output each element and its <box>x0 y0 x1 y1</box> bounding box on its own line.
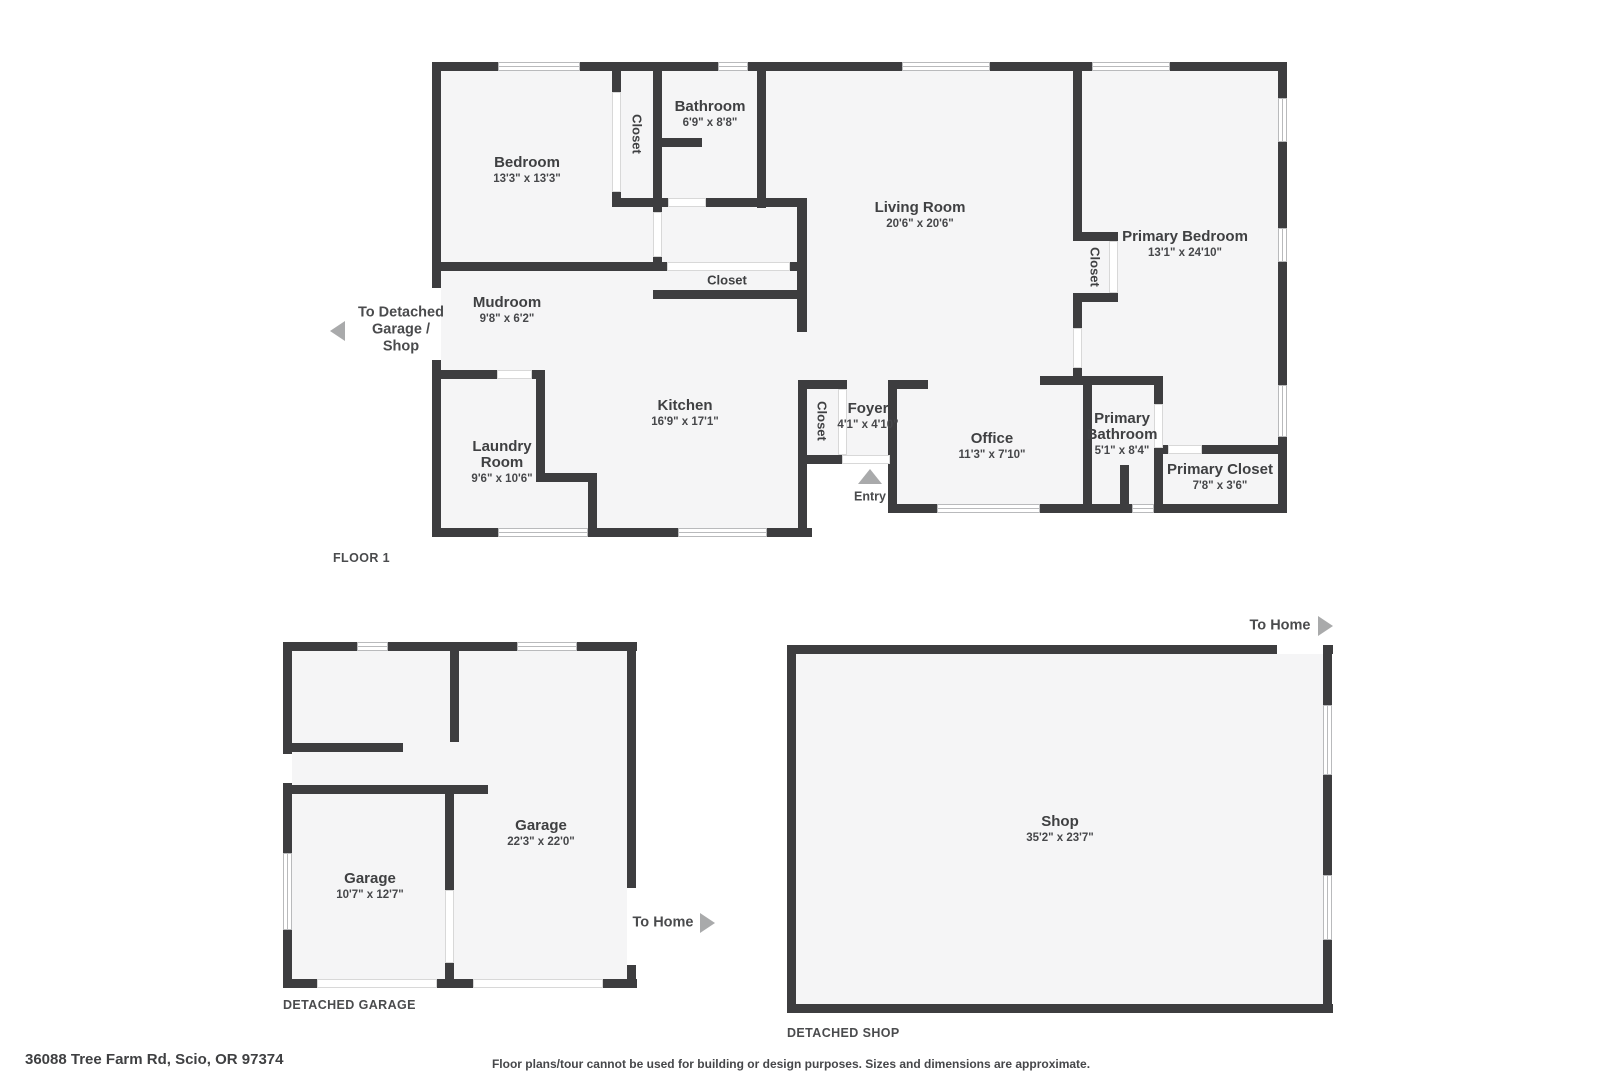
room-name: Foyer <box>837 401 898 417</box>
door-opening <box>1109 241 1118 293</box>
room-label-garage-main: Garage 22'3" x 22'0" <box>507 818 575 848</box>
closet-label-hall: Closet <box>707 273 747 288</box>
door-opening <box>283 754 292 783</box>
wall <box>1120 465 1129 513</box>
door-opening <box>612 92 621 192</box>
wall <box>1323 645 1332 1013</box>
wall <box>450 642 459 742</box>
room-label-garage-small: Garage 10'7" x 12'7" <box>336 871 404 901</box>
room-name: Primary Bathroom <box>1082 411 1162 443</box>
wall <box>536 370 545 482</box>
window <box>1132 504 1154 513</box>
room-label-office: Office 11'3" x 7'10" <box>959 431 1026 461</box>
window <box>1278 228 1287 262</box>
detached-shop-title: DETACHED SHOP <box>787 1026 900 1040</box>
wall <box>653 138 702 147</box>
window <box>517 642 577 651</box>
window <box>678 528 767 537</box>
room-name: Bedroom <box>493 155 561 171</box>
wall <box>612 198 807 207</box>
wall <box>1073 368 1082 385</box>
room-name: Primary Bedroom <box>1122 229 1248 245</box>
wall <box>1073 293 1118 302</box>
window <box>1278 385 1287 437</box>
wall <box>797 198 807 332</box>
window <box>902 62 990 71</box>
closet-label-foyer: Closet <box>815 401 830 441</box>
room-name: Office <box>959 431 1026 447</box>
arrow-right-icon <box>700 913 715 933</box>
room-name: Shop <box>1026 814 1094 830</box>
arrow-right-icon <box>1318 616 1333 636</box>
window <box>1092 62 1170 71</box>
room-label-primary-closet: Primary Closet 7'8" x 3'6" <box>1167 462 1273 492</box>
window <box>498 528 588 537</box>
wall <box>757 71 766 208</box>
wall <box>283 642 637 651</box>
door-opening <box>1277 645 1323 654</box>
room-label-primary-bathroom: Primary Bathroom 5'1" x 8'4" <box>1082 411 1162 457</box>
door-opening <box>668 198 706 207</box>
room-dims: 13'3" x 13'3" <box>493 173 561 185</box>
door-opening <box>497 370 532 379</box>
room-label-bedroom: Bedroom 13'3" x 13'3" <box>493 155 561 185</box>
room-label-shop: Shop 35'2" x 23'7" <box>1026 814 1094 844</box>
door-opening <box>473 979 603 988</box>
wall <box>1073 302 1082 328</box>
room-dims: 9'6" x 10'6" <box>471 473 533 485</box>
entry-marker-icon <box>858 469 882 484</box>
wall <box>888 380 928 389</box>
room-dims: 13'1" x 24'10" <box>1122 247 1248 259</box>
door-opening <box>317 979 437 988</box>
room-name: Garage <box>507 818 575 834</box>
closet-label-bedroom: Closet <box>630 114 645 154</box>
room-name: Kitchen <box>651 398 719 414</box>
to-home-label-shop: To Home <box>1250 617 1311 634</box>
room-dims: 20'6" x 20'6" <box>875 218 966 230</box>
wall <box>283 785 488 794</box>
room-label-laundry-room: Laundry Room 9'6" x 10'6" <box>471 439 533 485</box>
door-opening <box>842 455 890 464</box>
room-dims: 5'1" x 8'4" <box>1082 445 1162 457</box>
window <box>1323 875 1332 940</box>
closet-label-primary-bedroom: Closet <box>1088 247 1103 287</box>
room-name: Primary Closet <box>1167 462 1273 478</box>
floor-plan-page: Bedroom 13'3" x 13'3" Bathroom 6'9" x 8'… <box>0 0 1620 1080</box>
room-dims: 16'9" x 17'1" <box>651 416 719 428</box>
detached-garage-title: DETACHED GARAGE <box>283 998 416 1012</box>
room-label-living-room: Living Room 20'6" x 20'6" <box>875 200 966 230</box>
arrow-left-icon <box>330 321 345 341</box>
to-home-label-garage: To Home <box>633 914 694 931</box>
wall <box>787 645 1333 654</box>
door-opening <box>667 262 790 271</box>
wall <box>1073 232 1118 241</box>
wall <box>653 290 797 299</box>
room-name: Garage <box>336 871 404 887</box>
wall <box>588 473 597 537</box>
wall <box>798 380 847 389</box>
window <box>937 504 1040 513</box>
room-dims: 10'7" x 12'7" <box>336 889 404 901</box>
window <box>718 62 748 71</box>
room-name: Bathroom <box>675 99 746 115</box>
room-dims: 11'3" x 7'10" <box>959 449 1026 461</box>
room-label-mudroom: Mudroom 9'8" x 6'2" <box>473 295 541 325</box>
floor-area <box>288 647 632 983</box>
property-address: 36088 Tree Farm Rd, Scio, OR 97374 <box>25 1051 283 1068</box>
room-label-primary-bedroom: Primary Bedroom 13'1" x 24'10" <box>1122 229 1248 259</box>
wall <box>283 642 292 988</box>
wall <box>787 1004 1333 1013</box>
room-dims: 9'8" x 6'2" <box>473 313 541 325</box>
room-label-bathroom: Bathroom 6'9" x 8'8" <box>675 99 746 129</box>
room-dims: 6'9" x 8'8" <box>675 117 746 129</box>
door-opening <box>1073 328 1082 368</box>
wall <box>283 743 403 752</box>
wall <box>445 785 454 890</box>
room-dims: 7'8" x 3'6" <box>1167 480 1273 492</box>
wall <box>787 645 796 1013</box>
room-name: Mudroom <box>473 295 541 311</box>
window <box>498 62 580 71</box>
to-detached-label: To Detached Garage / Shop <box>354 304 449 355</box>
door-opening <box>1168 445 1202 454</box>
door-opening <box>653 212 662 257</box>
wall <box>1040 376 1163 385</box>
entry-label: Entry <box>854 490 886 505</box>
room-label-kitchen: Kitchen 16'9" x 17'1" <box>651 398 719 428</box>
room-dims: 35'2" x 23'7" <box>1026 832 1094 844</box>
window <box>283 853 292 930</box>
floor1-title: FLOOR 1 <box>333 551 390 565</box>
window <box>1278 98 1287 142</box>
window <box>357 642 388 651</box>
room-dims: 22'3" x 22'0" <box>507 836 575 848</box>
wall <box>445 963 454 979</box>
wall <box>1073 71 1082 232</box>
room-dims: 4'1" x 4'10" <box>837 419 898 431</box>
disclaimer-text: Floor plans/tour cannot be used for buil… <box>492 1057 1090 1071</box>
window <box>1323 705 1332 775</box>
door-opening <box>445 890 454 963</box>
room-label-foyer: Foyer 4'1" x 4'10" <box>837 401 898 431</box>
room-name: Living Room <box>875 200 966 216</box>
room-name: Laundry Room <box>471 439 533 471</box>
